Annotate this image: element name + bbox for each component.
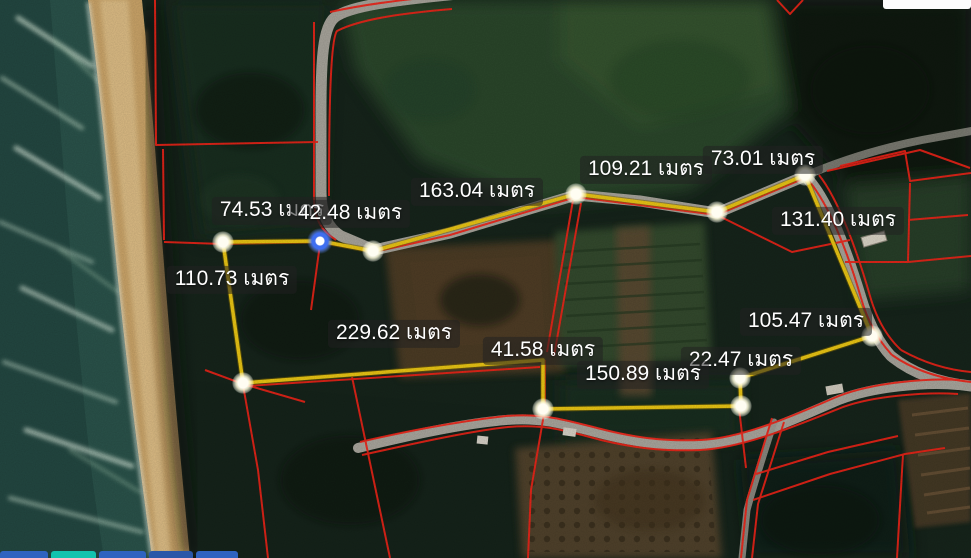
bottom-bar-segment[interactable] — [51, 551, 96, 558]
bottom-bar-segment[interactable] — [0, 551, 48, 558]
measurement-label: 41.58 เมตร — [483, 337, 603, 365]
photo-grain — [0, 0, 971, 558]
map-terrain-layer — [0, 0, 971, 558]
measure-vertex-marker[interactable] — [730, 395, 752, 417]
measure-vertex-marker[interactable] — [212, 231, 234, 253]
bottom-cutoff-button-bar[interactable] — [0, 551, 240, 558]
measurement-label: 73.01 เมตร — [703, 146, 823, 174]
measurement-label: 131.40 เมตร — [772, 207, 904, 235]
measurement-label: 42.48 เมตร — [290, 200, 410, 228]
measure-vertex-marker[interactable] — [532, 398, 554, 420]
bottom-bar-segment[interactable] — [196, 551, 238, 558]
measurement-label: 105.47 เมตร — [740, 308, 872, 336]
measure-vertex-marker[interactable] — [706, 201, 728, 223]
measurement-label: 150.89 เมตร — [577, 361, 709, 389]
measurement-label: 229.62 เมตร — [328, 320, 460, 348]
satellite-map-canvas[interactable]: 74.53 เมตร 42.48 เมตร 163.04 เมตร 109.21… — [0, 0, 971, 558]
bottom-bar-segment[interactable] — [99, 551, 146, 558]
measure-vertex-marker[interactable] — [232, 372, 254, 394]
selected-vertex-marker[interactable] — [307, 228, 333, 254]
measurement-label: 110.73 เมตร — [167, 266, 297, 294]
measure-vertex-marker[interactable] — [565, 183, 587, 205]
bottom-bar-segment[interactable] — [149, 551, 193, 558]
measure-vertex-marker[interactable] — [362, 240, 384, 262]
measurement-label: 109.21 เมตร — [580, 156, 712, 184]
measurement-label: 163.04 เมตร — [411, 178, 543, 206]
top-right-cutoff-box — [883, 0, 971, 9]
